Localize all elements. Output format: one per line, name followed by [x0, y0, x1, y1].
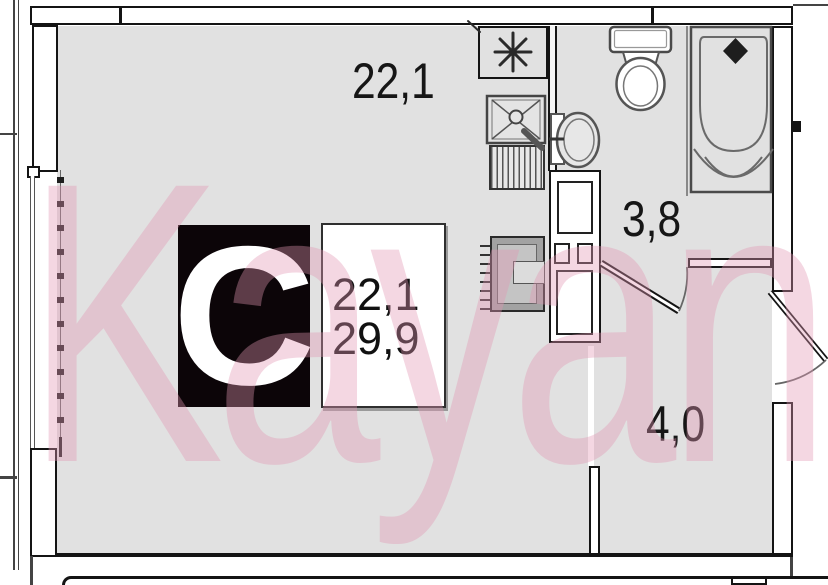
studio-logo-letter: C	[173, 217, 316, 415]
bathroom-bottom-wall	[688, 258, 772, 268]
left-tick-bottom	[0, 476, 17, 479]
appliance-hatch-ticks	[480, 238, 490, 310]
window-glazing	[30, 176, 35, 448]
sink-drainer	[489, 145, 545, 190]
left-tick-top	[0, 133, 17, 135]
room-hall-opening	[588, 346, 594, 466]
neighbor-below-wall	[62, 576, 828, 585]
left-outer-line-2	[18, 0, 20, 570]
neighbor-below-detail	[731, 577, 767, 585]
left-outer-line-1	[13, 0, 15, 570]
cabinet-unit-bottom	[556, 270, 593, 335]
bottom-wall	[55, 553, 793, 557]
top-wall-band	[30, 6, 793, 25]
kitchen-bath-wall	[548, 26, 557, 171]
living-room-area-label: 22,1	[352, 52, 435, 110]
cabinet-unit-square-2	[577, 243, 593, 264]
area-info-box: 22,1 29,9	[321, 223, 446, 408]
right-wall-tick	[793, 121, 801, 132]
info-box-room-area: 22,1	[332, 273, 444, 317]
hallway-wall-stub	[589, 466, 600, 556]
top-band-divider-right	[651, 6, 654, 25]
right-wall-lower	[772, 402, 793, 557]
hallway-area-label: 4,0	[646, 395, 705, 453]
entry-door	[770, 292, 826, 384]
top-right-edge-line	[793, 4, 828, 6]
vent-shaft-box	[478, 26, 548, 79]
cabinet-unit-square-1	[554, 243, 570, 264]
left-pier-bottom	[30, 448, 57, 557]
left-pier-top	[32, 25, 58, 172]
right-wall-upper	[772, 26, 793, 292]
kitchen-appliance-door	[513, 261, 545, 284]
studio-logo: C	[178, 225, 310, 407]
info-box-total-area: 29,9	[332, 317, 444, 361]
left-lower-line	[30, 556, 33, 585]
cabinet-unit-top	[557, 181, 593, 234]
floor-plan: 22,1 3,8 4,0 22,1 29,9 C Kayan	[0, 0, 828, 585]
bathroom-area-label: 3,8	[622, 190, 681, 248]
top-band-divider-left	[119, 6, 122, 25]
